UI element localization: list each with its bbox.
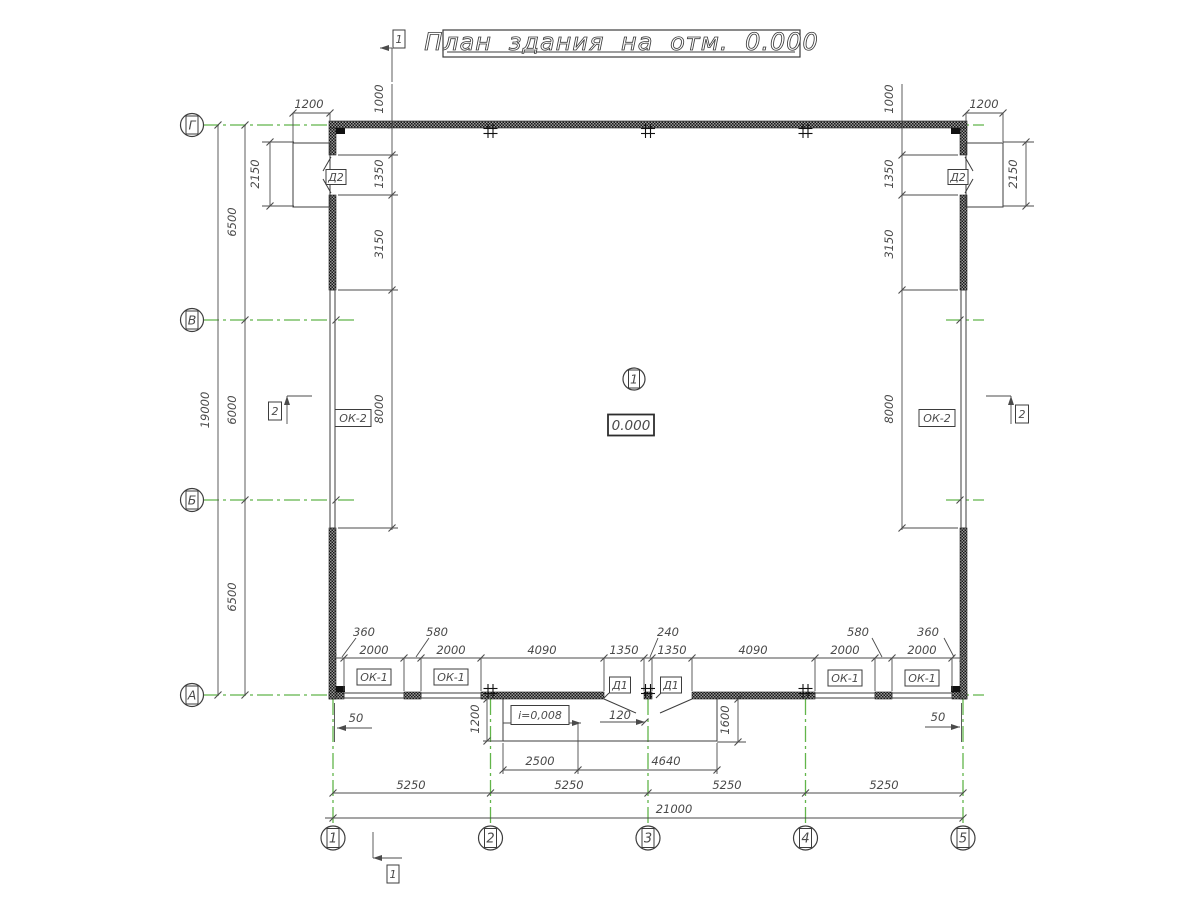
- dim-text: 1350: [609, 643, 638, 657]
- elevation-mark: 0.000: [612, 418, 651, 434]
- tag-label: 1: [390, 868, 397, 881]
- dim-text: 2000: [907, 643, 936, 657]
- dim-text: 8000: [882, 394, 896, 423]
- dim-text: 1350: [657, 643, 686, 657]
- tag-label: ОК-1: [831, 672, 858, 685]
- dim-text: 4640: [651, 754, 680, 768]
- entrance-landing: [966, 143, 1003, 207]
- drawing-sheet: 1200120020002000409013501350409020002000…: [0, 0, 1200, 900]
- dim-arrow: [951, 724, 960, 730]
- dim-text: 1350: [372, 159, 386, 188]
- dim-arrow: [284, 396, 290, 405]
- dim-text: 360: [917, 625, 939, 639]
- axis-bubble-label: 2: [486, 832, 494, 847]
- door-leaf: [660, 699, 692, 713]
- floor-plan: 1200120020002000409013501350409020002000…: [0, 0, 1200, 900]
- dim-line: [416, 638, 429, 657]
- corner-column: [336, 128, 345, 134]
- room-tag-number: 1: [630, 372, 638, 387]
- dim-text: 19000: [198, 392, 212, 429]
- wall-segment: [960, 528, 967, 699]
- dim-arrow: [572, 720, 581, 726]
- axis-bubble-label: 3: [644, 832, 652, 847]
- tag-label: ОК-1: [908, 672, 935, 685]
- window: [330, 290, 335, 528]
- tag-label: Д1: [611, 679, 628, 692]
- wall-segment: [329, 121, 967, 128]
- tag-label: 1: [396, 33, 403, 46]
- dim-text: 1600: [718, 705, 732, 734]
- tag-label: ОК-2: [923, 412, 950, 425]
- dim-arrow: [1008, 396, 1014, 405]
- dim-text: 6500: [225, 582, 239, 611]
- dim-text: 1200: [468, 704, 482, 733]
- dim-text: 580: [426, 625, 448, 639]
- door-leaf: [656, 693, 661, 698]
- dim-text: 580: [847, 625, 869, 639]
- dim-arrow: [337, 725, 346, 731]
- wall-segment: [875, 692, 892, 699]
- dim-text: 1200: [294, 97, 323, 111]
- corner-column: [951, 128, 960, 134]
- dim-text: 50: [931, 710, 946, 724]
- dim-text: 2150: [248, 159, 262, 188]
- dim-arrow: [373, 855, 382, 861]
- dim-text: 360: [353, 625, 375, 639]
- dim-line: [872, 638, 882, 657]
- tag-label: ОК-1: [437, 671, 464, 684]
- wall-segment: [481, 692, 604, 699]
- tag-label: Д2: [949, 171, 966, 184]
- axis-bubble-label: 1: [329, 832, 337, 847]
- window: [961, 290, 966, 528]
- dim-text: 4090: [527, 643, 556, 657]
- dim-text: 5250: [554, 778, 583, 792]
- dim-text: 2500: [525, 754, 554, 768]
- dim-text: 6000: [225, 395, 239, 424]
- wall-segment: [329, 528, 336, 699]
- dim-line: [944, 638, 954, 657]
- dim-text: 6500: [225, 207, 239, 236]
- dim-text: 120: [609, 708, 631, 722]
- wall-segment: [960, 195, 967, 290]
- dim-text: 1000: [882, 84, 896, 113]
- window: [421, 693, 481, 698]
- dim-text: 21000: [656, 802, 693, 816]
- axis-bubble-label: 5: [959, 832, 967, 847]
- dim-text: 5250: [869, 778, 898, 792]
- dim-text: 5250: [396, 778, 425, 792]
- window: [892, 693, 952, 698]
- dim-text: 1350: [882, 159, 896, 188]
- axis-bubble-label: В: [188, 313, 197, 328]
- dim-arrow: [380, 45, 389, 51]
- dim-text: 240: [657, 625, 679, 639]
- dim-text: 4090: [738, 643, 767, 657]
- axis-bubble-label: Б: [188, 493, 197, 508]
- dim-text: 3150: [372, 229, 386, 258]
- dim-text: 5250: [712, 778, 741, 792]
- door-leaf: [604, 693, 609, 698]
- window: [344, 693, 404, 698]
- window: [815, 693, 875, 698]
- tag-label: 2: [272, 405, 279, 418]
- tag-label: ОК-1: [360, 671, 387, 684]
- dim-text: 1000: [372, 84, 386, 113]
- entrance-landing: [293, 143, 330, 207]
- axis-bubble-label: Г: [189, 118, 197, 133]
- wall-segment: [404, 692, 421, 699]
- tag-label: Д1: [662, 679, 679, 692]
- axis-bubble-label: А: [187, 688, 197, 703]
- tag-label: Д2: [327, 171, 344, 184]
- wall-segment: [692, 692, 815, 699]
- tag-label: i=0,008: [518, 709, 562, 722]
- axis-bubble-label: 4: [801, 832, 809, 847]
- page-title: План здания на отм. 0.000: [424, 28, 819, 56]
- dim-line: [342, 638, 356, 657]
- dim-text: 50: [349, 711, 364, 725]
- tag-label: ОК-2: [339, 412, 366, 425]
- dim-text: 1200: [969, 97, 998, 111]
- wall-segment: [329, 195, 336, 290]
- dim-text: 2000: [359, 643, 388, 657]
- dim-text: 2000: [436, 643, 465, 657]
- dim-text: 8000: [372, 394, 386, 423]
- tag-label: 2: [1019, 408, 1026, 421]
- dim-text: 2150: [1006, 159, 1020, 188]
- dim-text: 3150: [882, 229, 896, 258]
- dim-text: 2000: [830, 643, 859, 657]
